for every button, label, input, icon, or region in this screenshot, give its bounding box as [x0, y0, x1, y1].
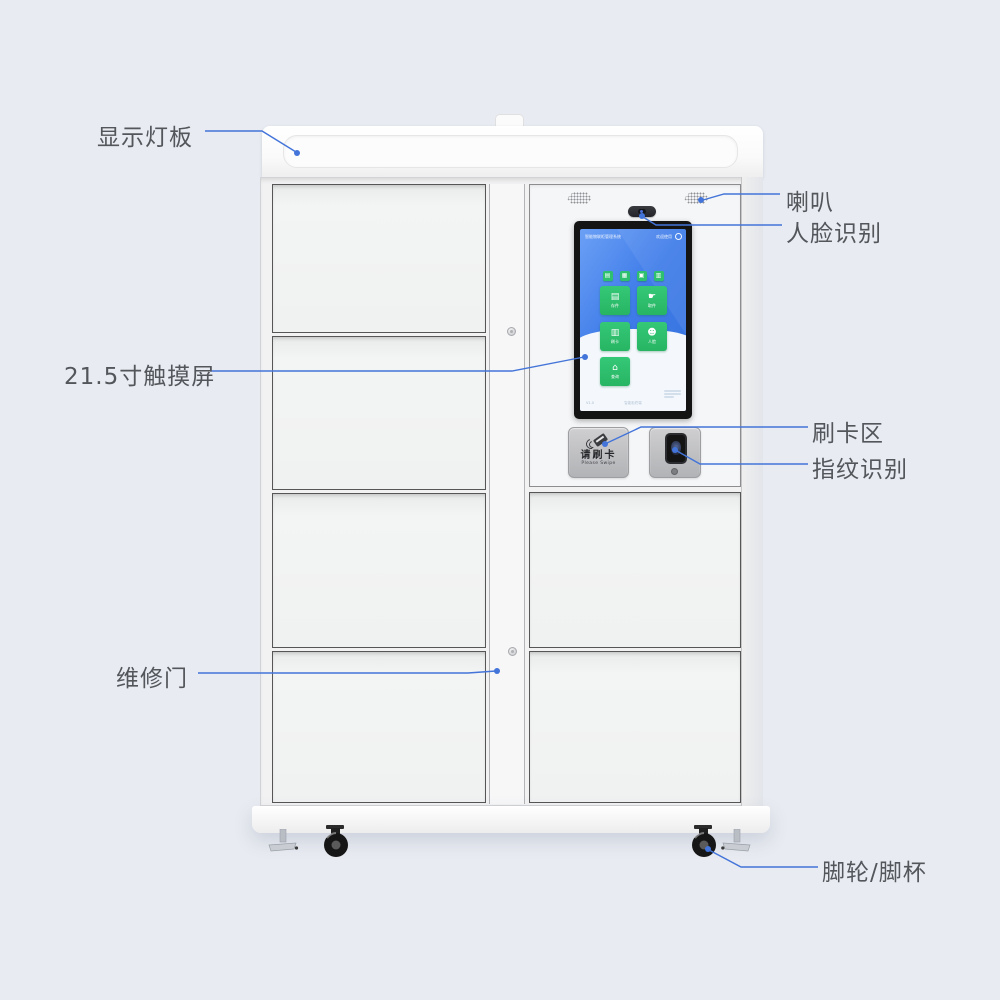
fingerprint-pad [649, 427, 701, 478]
locker-door [529, 492, 741, 648]
touchscreen-bezel: 智能物联柜管理系统 欢迎使用 ▤ ▦ ▣ ▥ ▤ 存件 ☛ 取件 [574, 221, 692, 419]
display-light-panel [283, 135, 738, 168]
locker-door [272, 336, 486, 490]
fingerprint-indicator-dot [671, 468, 678, 475]
screw [508, 647, 517, 656]
pickup-icon: ☛ [648, 293, 656, 302]
screen-topbar: 智能物联柜管理系统 欢迎使用 [585, 233, 682, 240]
label-display-light-panel: 显示灯板 [97, 118, 193, 152]
screen-status: 欢迎使用 [656, 233, 682, 240]
mini-icon: ▤ [603, 271, 613, 281]
screen-title: 智能物联柜管理系统 [585, 234, 621, 240]
cabinet-side-face [741, 177, 763, 806]
card-swipe-pad: 请刷卡 Please Swipe [568, 427, 629, 478]
card-pad-text-en: Please Swipe [569, 461, 628, 466]
product-diagram: 智能物联柜管理系统 欢迎使用 ▤ ▦ ▣ ▥ ▤ 存件 ☛ 取件 [0, 0, 1000, 1000]
settings-ring-icon [675, 233, 682, 240]
mini-icon: ▦ [620, 271, 630, 281]
screen-button-card: ▥ 刷卡 [600, 322, 630, 351]
person-icon: ☻ [647, 329, 656, 338]
face-recognition-camera [628, 206, 656, 217]
leveling-foot [721, 829, 753, 855]
locker-door [272, 651, 486, 803]
label-fingerprint-reader: 指纹识别 [812, 450, 908, 484]
label-card-swipe-area: 刷卡区 [812, 414, 884, 448]
touchscreen: 智能物联柜管理系统 欢迎使用 ▤ ▦ ▣ ▥ ▤ 存件 ☛ 取件 [580, 229, 686, 411]
swipe-card-icon [586, 432, 612, 449]
screen-button-face: ☻ 人脸 [637, 322, 667, 351]
locker-door [272, 184, 486, 333]
fingerprint-scanner-icon [665, 433, 687, 464]
label-touchscreen: 21.5寸触摸屏 [64, 357, 215, 391]
camera-lens-icon [638, 209, 646, 214]
label-speaker: 喇叭 [786, 183, 834, 217]
screen-button-pickup: ☛ 取件 [637, 286, 667, 315]
query-icon: ⌂ [612, 364, 618, 373]
label-maintenance-door: 维修门 [116, 659, 188, 693]
quick-icon-row: ▤ ▦ ▣ ▥ [580, 271, 686, 281]
maintenance-door-strip [489, 184, 525, 804]
screw [507, 327, 516, 336]
label-caster-foot: 脚轮/脚杯 [822, 853, 927, 887]
caster-wheel [313, 824, 359, 860]
deposit-icon: ▤ [611, 293, 620, 302]
card-icon: ▥ [611, 329, 620, 338]
locker-door [272, 493, 486, 648]
cabinet-roof [262, 126, 763, 178]
screen-button-query: ⌂ 查询 [600, 357, 630, 386]
card-pad-text-cn: 请刷卡 [569, 450, 628, 461]
screen-footer-center: 智能柜终端 [580, 401, 686, 406]
mini-icon: ▣ [637, 271, 647, 281]
locker-door [529, 651, 741, 803]
mini-icon: ▥ [654, 271, 664, 281]
screen-button-deposit: ▤ 存件 [600, 286, 630, 315]
screen-stamp [664, 390, 681, 399]
label-face-recognition: 人脸识别 [786, 214, 882, 248]
leveling-foot [267, 829, 299, 855]
